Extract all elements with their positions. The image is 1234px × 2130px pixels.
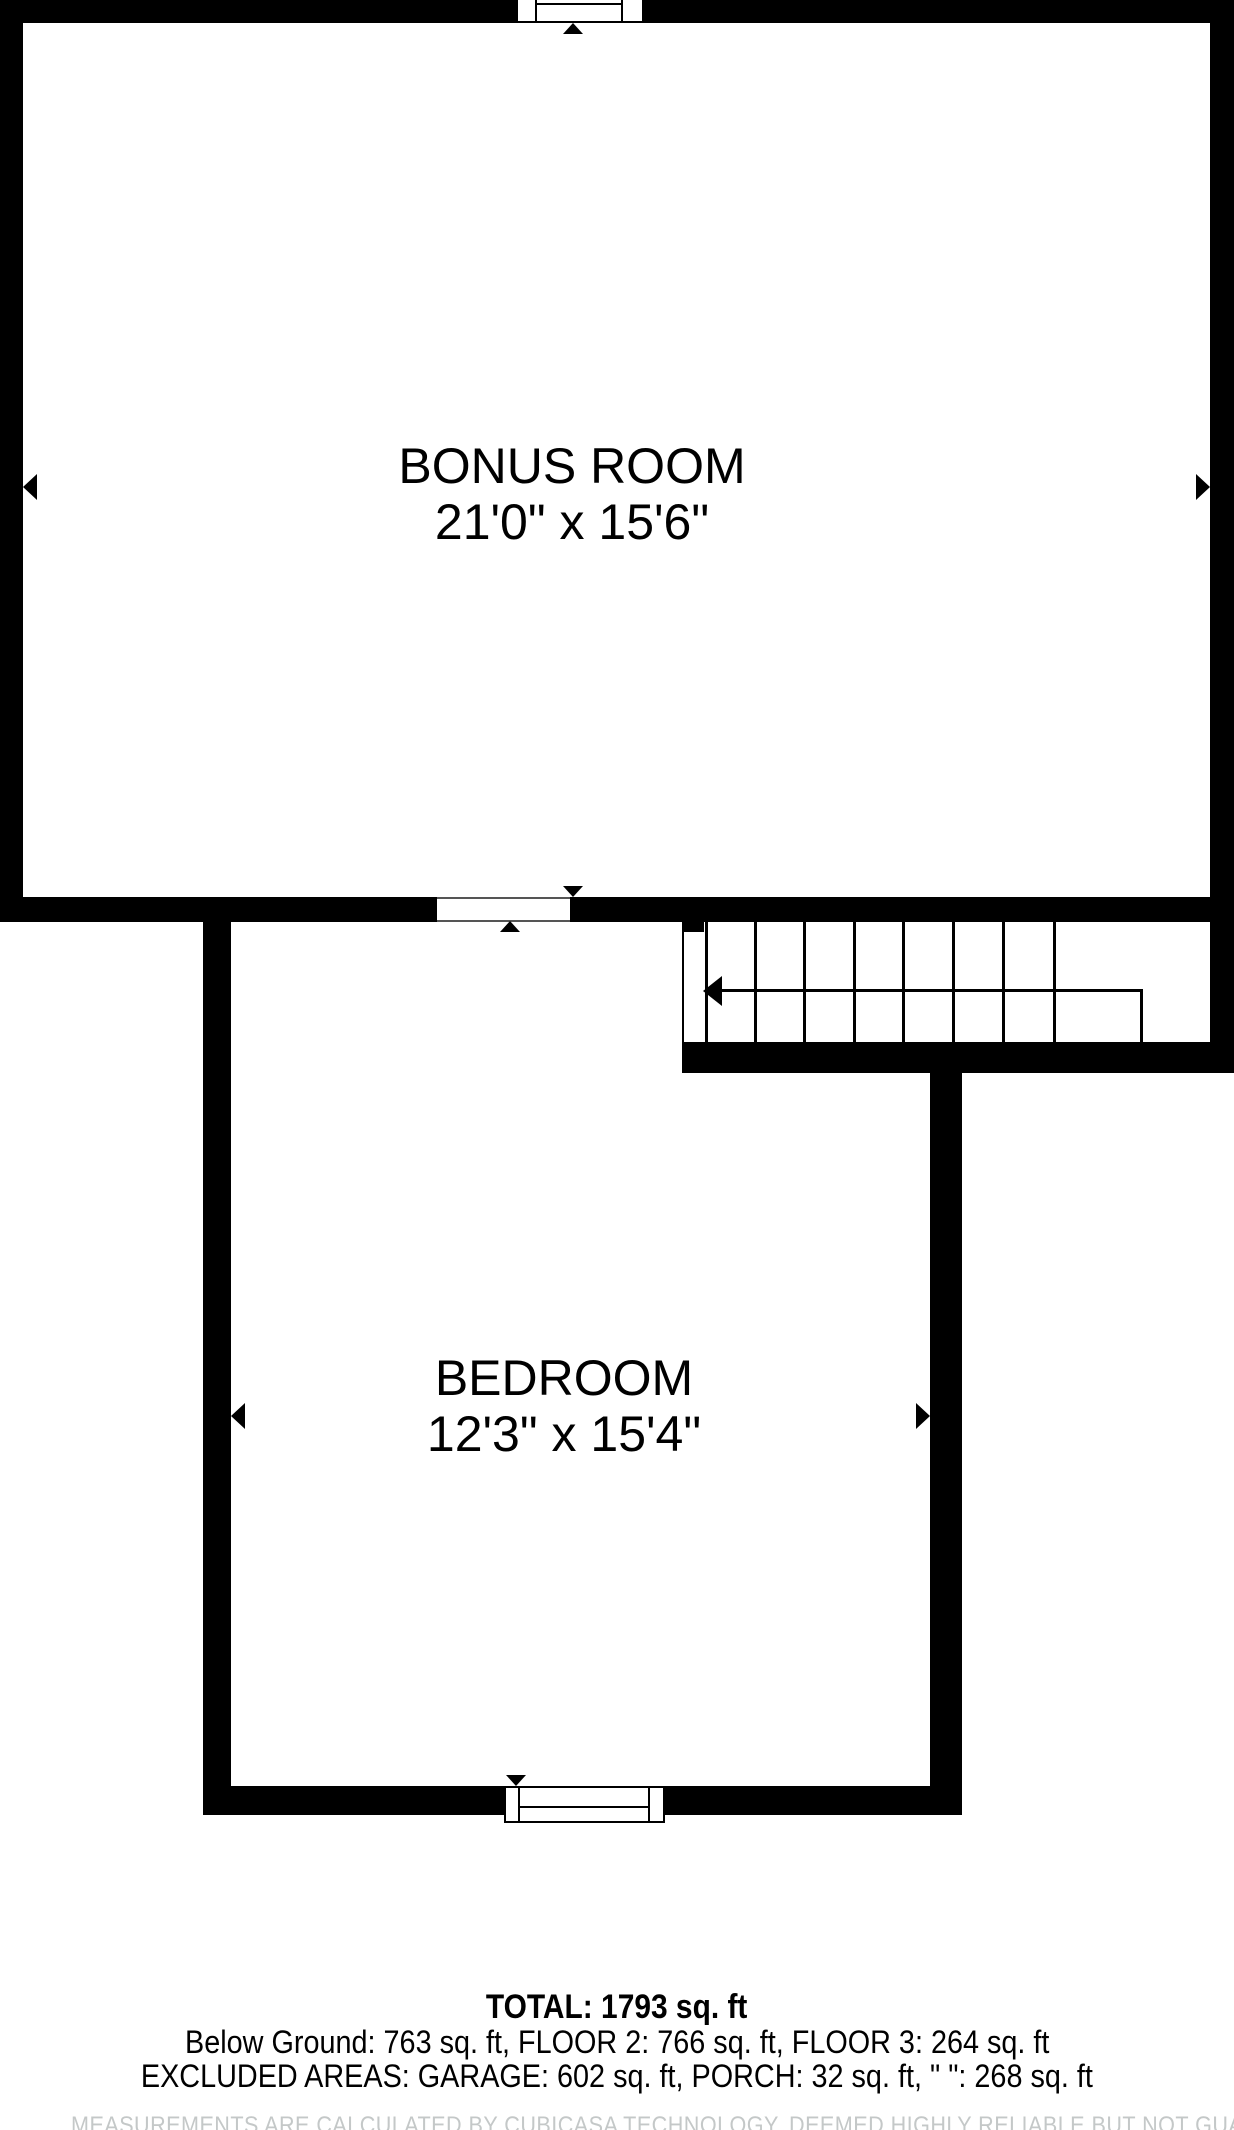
stair-tread — [902, 920, 905, 1042]
stair-tread — [803, 920, 806, 1042]
window-glass-line — [520, 1806, 648, 1808]
window-frame-inner-right — [648, 1786, 650, 1823]
stair-tread — [853, 920, 856, 1042]
stair-left-edge — [682, 922, 684, 1042]
room-dimensions: 21'0" x 15'6" — [272, 494, 872, 550]
floor-breakdown-text: Below Ground: 763 sq. ft, FLOOR 2: 766 s… — [0, 2024, 1234, 2061]
stair-tread — [952, 920, 955, 1042]
total-area-text: TOTAL: 1793 sq. ft — [0, 1988, 1234, 2027]
window-icon — [504, 1786, 665, 1823]
room-name: BEDROOM — [264, 1350, 864, 1406]
excluded-areas-text: EXCLUDED AREAS: GARAGE: 602 sq. ft, PORC… — [0, 2058, 1234, 2095]
window-glass-line — [535, 3, 623, 5]
floorplan-canvas: BONUS ROOM 21'0" x 15'6" BEDROOM 12'3" x… — [0, 0, 1234, 2130]
measure-marker-up-icon — [563, 23, 583, 34]
stair-tread — [1002, 920, 1005, 1042]
measure-marker-left-icon — [231, 1403, 245, 1429]
stair-landing-edge — [1140, 990, 1143, 1042]
stair-tread — [1053, 920, 1056, 1042]
measure-marker-right-icon — [1196, 474, 1210, 500]
window-frame-left — [516, 0, 518, 23]
room-name: BONUS ROOM — [272, 438, 872, 494]
window-frame-inner-left — [518, 1786, 520, 1823]
measure-marker-up-icon — [500, 921, 520, 932]
door-opening — [437, 897, 570, 922]
wall-stair-bottom — [682, 1042, 1234, 1073]
wall-bedroom-right — [930, 1042, 962, 1815]
wall-stair-stub — [682, 922, 704, 932]
stair-direction-arrow-shaft — [722, 989, 1143, 992]
wall-bedroom-left — [203, 922, 231, 1815]
measure-marker-down-icon — [506, 1775, 526, 1786]
disclaimer-text: MEASUREMENTS ARE CALCULATED BY CUBICASA … — [0, 2112, 1234, 2130]
window-frame-right — [642, 0, 644, 23]
room-label-bonus-room: BONUS ROOM 21'0" x 15'6" — [272, 438, 872, 550]
room-label-bedroom: BEDROOM 12'3" x 15'4" — [264, 1350, 864, 1462]
measure-marker-right-icon — [916, 1403, 930, 1429]
wall-left — [0, 0, 23, 922]
measure-marker-left-icon — [23, 474, 37, 500]
room-dimensions: 12'3" x 15'4" — [264, 1406, 864, 1462]
wall-middle-horizontal — [0, 897, 1234, 922]
stair-tread — [754, 920, 757, 1042]
measure-marker-down-icon — [563, 886, 583, 897]
door-opening-top-line — [437, 897, 570, 899]
stair-direction-arrow-icon — [703, 976, 722, 1006]
